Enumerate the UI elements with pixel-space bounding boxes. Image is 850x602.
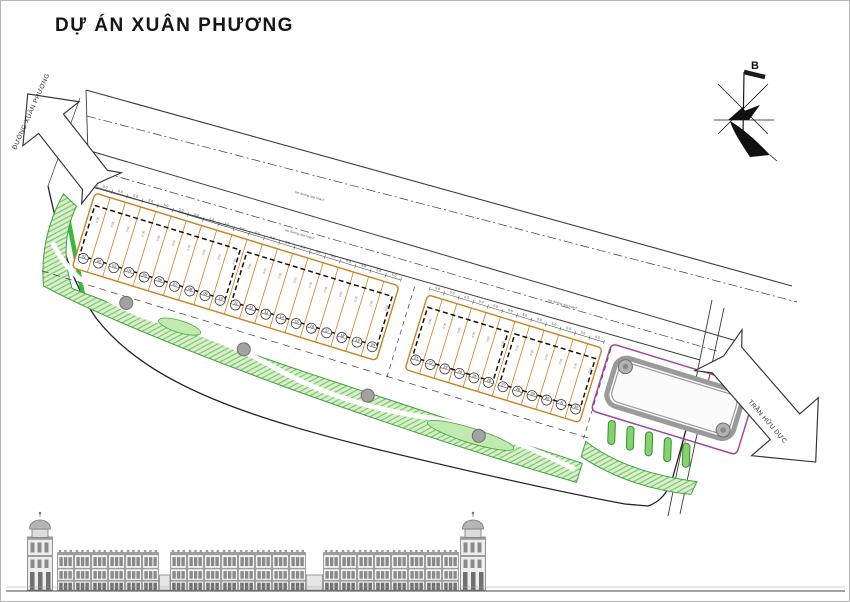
lot-width-label: 5.0: [580, 330, 586, 335]
lot-width-label: 5.0: [300, 245, 306, 250]
townhouse-unit: [409, 550, 425, 590]
townhouse-unit: [392, 550, 408, 590]
lot-width-label: 5.0: [464, 295, 470, 300]
townhouse-unit: [188, 550, 204, 590]
townhouse-unit: [92, 550, 108, 590]
building-elevation: [28, 512, 486, 590]
page-title: DỰ ÁN XUÂN PHƯƠNG: [55, 14, 294, 36]
lot-width-label: 5.0: [493, 304, 499, 309]
townhouse-unit: [273, 550, 289, 590]
lot-width-label: 5.0: [285, 240, 291, 245]
tower-unit: [461, 512, 486, 590]
lot-width-label: 5.0: [376, 268, 382, 273]
elevation-link-wall: [160, 575, 171, 590]
townhouse-unit: [358, 550, 374, 590]
lot-width-label: 5.0: [507, 308, 513, 313]
lot-row-1: 5.050.0015.050.0025.050.0035.050.0045.05…: [72, 183, 402, 361]
north-label: B: [751, 60, 759, 72]
townhouse-unit: [171, 550, 187, 590]
townhouse-unit: [426, 550, 442, 590]
lot-width-label: 5.0: [330, 254, 336, 259]
townhouse-unit: [290, 550, 306, 590]
lot-width-label: 5.0: [391, 273, 397, 278]
lot-width-label: 5.0: [118, 189, 124, 194]
lot-width-label: 5.0: [361, 263, 367, 268]
parking-stall: [608, 420, 616, 444]
svg-text:tim đường quy hoạch: tim đường quy hoạch: [295, 190, 325, 202]
townhouse-unit: [143, 550, 159, 590]
townhouse-unit: [256, 550, 272, 590]
svg-text:tim đường quy hoạch: tim đường quy hoạch: [548, 298, 578, 310]
lot-width-label: 5.0: [133, 194, 139, 199]
lot-width-label: 5.0: [551, 322, 557, 327]
lot-width-label: 5.0: [449, 290, 455, 295]
elevation-link-wall: [306, 575, 323, 590]
lot-width-label: 5.0: [194, 212, 200, 217]
site-blocks: 5.050.0015.050.0025.050.0035.050.0045.05…: [23, 173, 758, 525]
lot-width-label: 5.0: [315, 249, 321, 254]
lot-width-label: 5.0: [537, 317, 543, 322]
tower-unit: [28, 512, 53, 590]
lot-width-label: 5.0: [254, 231, 260, 236]
lot-width-label: 5.0: [522, 313, 528, 318]
townhouse-unit: [222, 550, 238, 590]
svg-text:tim đường quy hoạch: tim đường quy hoạch: [285, 228, 315, 240]
townhouse-unit: [239, 550, 255, 590]
townhouse-unit: [341, 550, 357, 590]
townhouse-unit: [126, 550, 142, 590]
lot-width-label: 5.0: [270, 235, 276, 240]
townhouse-unit: [58, 550, 74, 590]
north-arrow-icon: B: [714, 60, 777, 161]
lot-width-label: 5.0: [478, 299, 484, 304]
parking-stall: [626, 426, 634, 450]
townhouse-unit: [109, 550, 125, 590]
lot-width-label: 5.0: [346, 259, 352, 264]
parking-stall: [682, 443, 690, 467]
lot-width-label: 5.0: [566, 326, 572, 331]
townhouse-unit: [205, 550, 221, 590]
townhouse-unit: [443, 550, 459, 590]
parking-stall: [645, 432, 653, 456]
site-plan-drawing: DỰ ÁN XUÂN PHƯƠNG tim đường quy hoạch ti…: [0, 0, 850, 602]
townhouse-unit: [375, 550, 391, 590]
townhouse-unit: [75, 550, 91, 590]
lot-width-label: 5.0: [102, 184, 108, 189]
townhouse-unit: [324, 550, 340, 590]
lot-width-label: 5.0: [595, 335, 601, 340]
parking-stall: [664, 437, 672, 461]
drawing-page: DỰ ÁN XUÂN PHƯƠNG tim đường quy hoạch ti…: [0, 0, 850, 602]
lot-width-label: 5.0: [435, 286, 441, 291]
